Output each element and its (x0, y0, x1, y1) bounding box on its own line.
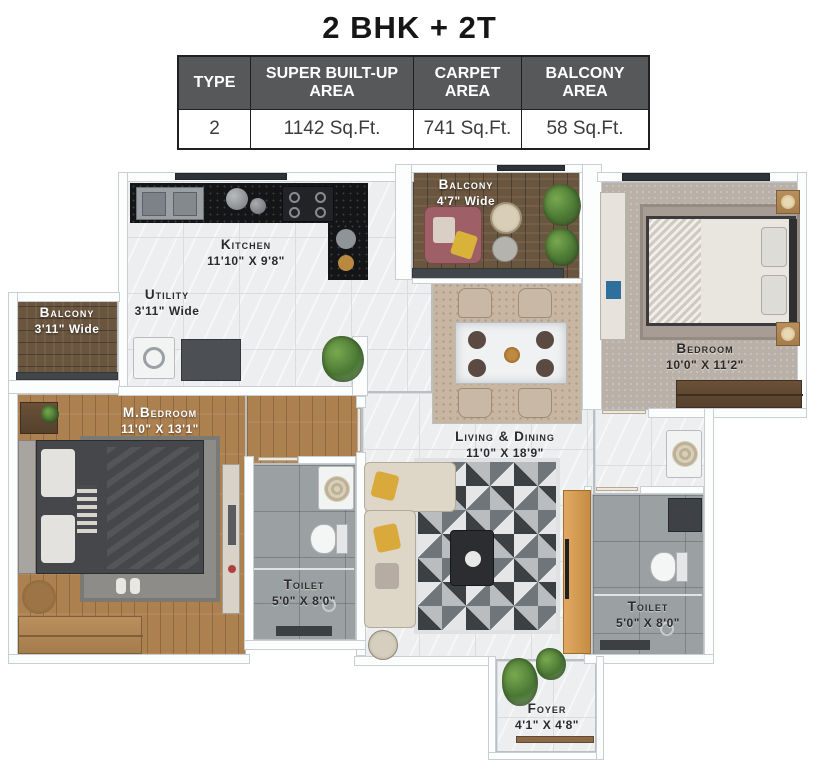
bed-runner (649, 219, 701, 323)
table-value-carpet: 741 Sq.Ft. (414, 110, 521, 148)
balcony-stool (492, 236, 518, 262)
sofa-pillow (375, 563, 399, 589)
nightstand (776, 190, 800, 214)
wall (395, 164, 412, 280)
wall (8, 380, 120, 394)
dining-table (455, 322, 567, 384)
dining-chair (518, 288, 552, 318)
pillow (761, 275, 787, 315)
shower-unit (668, 498, 702, 532)
counter-item (336, 229, 356, 249)
plant (543, 184, 581, 226)
burner (289, 192, 300, 203)
kitchen-jar (226, 188, 248, 210)
counter-item (338, 255, 354, 271)
shower-mat (276, 626, 332, 636)
plant (41, 405, 59, 423)
headboard (789, 219, 797, 323)
plant (536, 648, 566, 680)
bed (646, 216, 796, 326)
console-tv (228, 505, 236, 545)
sofa (364, 510, 416, 628)
plant (322, 336, 364, 382)
balcony-table (490, 202, 522, 234)
washing-machine (133, 337, 175, 379)
bedroom-door (602, 410, 646, 414)
wall (488, 752, 604, 760)
table-header-built-up: SUPER BUILT-UP AREA (251, 57, 413, 109)
centerpiece (504, 347, 520, 363)
toilet-right-door (596, 487, 638, 491)
balcony-left-floor (16, 300, 118, 380)
sink-bowl (173, 192, 197, 216)
sofa-chaise (364, 462, 456, 512)
page-title: 2 BHK + 2T (0, 10, 819, 46)
table-value-balcony: 58 Sq.Ft. (522, 110, 648, 148)
burner (289, 207, 300, 218)
wall (488, 656, 496, 760)
wall (704, 408, 714, 664)
wc-tank (336, 524, 348, 554)
table-header-type: TYPE (179, 57, 250, 109)
master-bed (36, 440, 204, 574)
master-headboard (18, 440, 36, 574)
wardrobe-line (677, 394, 803, 396)
master-wardrobe (18, 616, 142, 654)
slippers (116, 578, 126, 594)
shower-mat (600, 640, 650, 650)
plate (468, 331, 486, 349)
tv-screen (565, 539, 569, 599)
plate (536, 331, 554, 349)
wall (244, 456, 254, 648)
pillow (41, 515, 75, 563)
side-table (368, 630, 398, 660)
console-item (228, 565, 236, 573)
toilet-left-basin (318, 466, 354, 510)
entrance-door (516, 736, 594, 743)
wall (412, 278, 582, 284)
utility-cabinet (181, 339, 241, 381)
pillow (761, 227, 787, 267)
wall (8, 654, 250, 664)
kitchen-jar (250, 198, 266, 214)
dressing-floor (246, 394, 362, 464)
wall (298, 456, 356, 464)
basin-bowl (672, 441, 698, 467)
floor-plan: 2 BHK + 2T TYPE SUPER BUILT-UP AREA CARP… (0, 0, 819, 772)
coffee-table (450, 530, 494, 586)
chair-cushion (433, 217, 455, 243)
balcony-left-railing (16, 372, 118, 380)
balcony-window (497, 165, 565, 171)
plate (536, 359, 554, 377)
wall (244, 640, 366, 650)
lamp (781, 195, 795, 209)
table-value-built-up: 1142 Sq.Ft. (251, 110, 413, 148)
table-header-balcony: BALCONY AREA (522, 57, 648, 109)
area-table: TYPE SUPER BUILT-UP AREA CARPET AREA BAL… (177, 55, 650, 150)
table-header-carpet: CARPET AREA (414, 57, 521, 109)
kitchen-sink (136, 187, 204, 220)
foyer-plant (502, 658, 538, 706)
duvet-texture (107, 447, 199, 569)
dining-chair (518, 388, 552, 418)
wardrobe-line (19, 635, 143, 637)
corner-table (20, 402, 58, 434)
shower-glass (594, 594, 702, 596)
kitchen-counter-side (328, 223, 368, 280)
dresser-console (222, 464, 240, 614)
kitchen-window (175, 173, 287, 180)
table-value-type: 2 (179, 110, 250, 148)
plate (468, 359, 486, 377)
wall (640, 486, 704, 494)
balcony-chair (424, 206, 482, 264)
plant (545, 228, 579, 266)
burner (315, 192, 326, 203)
basin-bowl (324, 476, 350, 502)
wall (8, 292, 120, 302)
wall (356, 396, 366, 408)
burner (315, 207, 326, 218)
lamp (781, 327, 795, 341)
wall (582, 164, 602, 410)
bed-runner (77, 485, 97, 533)
wall (648, 408, 807, 418)
wall (118, 172, 128, 396)
slippers (130, 578, 140, 594)
pillow (41, 449, 75, 497)
side-table (22, 580, 56, 614)
washer-door (143, 347, 165, 369)
books (606, 281, 621, 299)
passage-basin (666, 430, 702, 478)
shower-glass (254, 568, 354, 570)
sofa-pillow (370, 470, 400, 501)
bedroom-window (622, 173, 770, 181)
shower-drain (322, 598, 336, 612)
sink-bowl (142, 192, 166, 216)
master-bedroom-door (357, 408, 361, 452)
toilet-right-wc (650, 552, 676, 582)
wall (118, 386, 366, 396)
wall (596, 656, 604, 760)
wc-tank (676, 552, 688, 582)
bedroom-desk (600, 192, 626, 340)
tray (465, 551, 481, 567)
wall (8, 292, 18, 664)
bedroom-wardrobe (676, 380, 802, 408)
toilet-left-wc (310, 524, 336, 554)
stove (282, 186, 334, 222)
tv-unit (563, 490, 591, 654)
dining-chair (458, 388, 492, 418)
sofa-pillow (373, 523, 402, 553)
shower-drain (660, 622, 674, 636)
dining-chair (458, 288, 492, 318)
nightstand (776, 322, 800, 346)
toilet-left-door (258, 457, 298, 461)
